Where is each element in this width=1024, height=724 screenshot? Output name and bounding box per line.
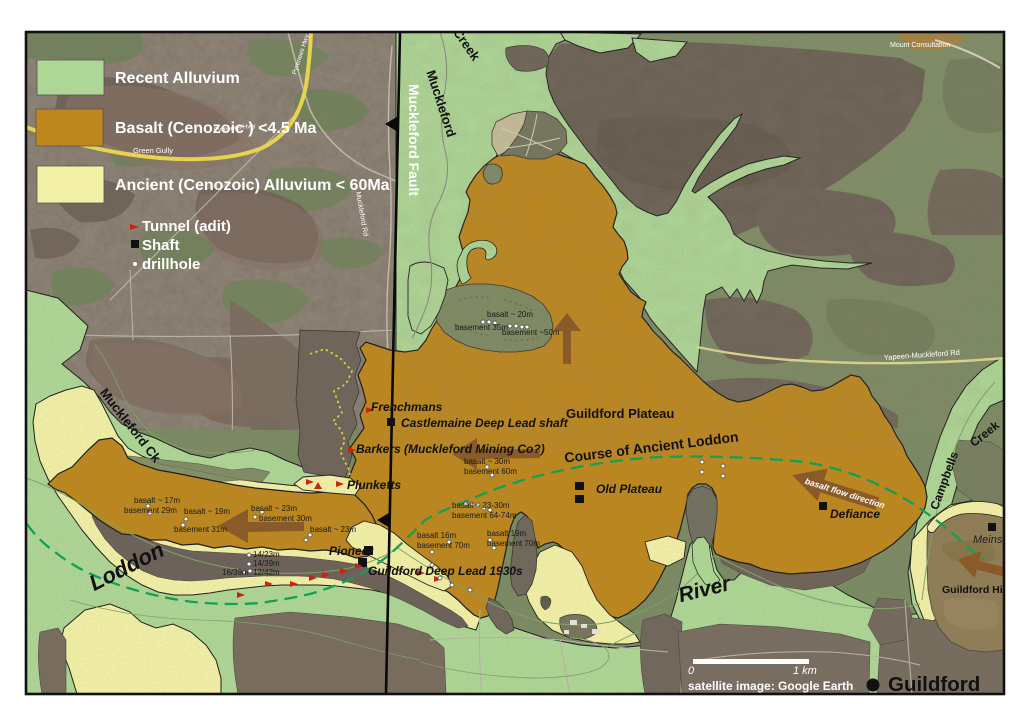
svg-text:basalt ~ 20m: basalt ~ 20m bbox=[487, 310, 533, 319]
svg-text:Meins: Meins bbox=[973, 534, 1003, 546]
svg-text:Guildford: Guildford bbox=[888, 673, 980, 696]
svg-text:Old Plateau: Old Plateau bbox=[596, 482, 663, 496]
svg-text:Green Gully: Green Gully bbox=[133, 146, 173, 155]
svg-text:basalt ~ 19m: basalt ~ 19m bbox=[184, 507, 230, 516]
svg-text:basement 29m: basement 29m bbox=[124, 506, 177, 515]
svg-text:Guildford Deep Lead 1930s: Guildford Deep Lead 1930s bbox=[368, 564, 523, 578]
svg-text:basement 60m: basement 60m bbox=[464, 467, 517, 476]
svg-text:Frenchmans: Frenchmans bbox=[371, 400, 443, 414]
svg-text:12/42m: 12/42m bbox=[253, 568, 280, 577]
svg-text:Muckleford Fault: Muckleford Fault bbox=[406, 84, 422, 196]
svg-text:Basalt (Cenozoic ) <4.5 Ma: Basalt (Cenozoic ) <4.5 Ma bbox=[115, 120, 316, 137]
svg-text:basement ~50m: basement ~50m bbox=[502, 328, 560, 337]
svg-text:basalt ~ 23m: basalt ~ 23m bbox=[251, 504, 297, 513]
svg-text:basalt 16m: basalt 16m bbox=[417, 531, 456, 540]
svg-text:Pioneer: Pioneer bbox=[329, 544, 374, 558]
svg-text:Castlemaine Deep Lead shaft: Castlemaine Deep Lead shaft bbox=[401, 416, 569, 430]
svg-text:basement 30m: basement 30m bbox=[259, 514, 312, 523]
svg-text:Shaft: Shaft bbox=[142, 237, 180, 254]
svg-text:drillhole: drillhole bbox=[142, 256, 200, 273]
svg-text:basalt ~ 23m: basalt ~ 23m bbox=[310, 525, 356, 534]
svg-text:Barkers (Muckleford Mining Co?: Barkers (Muckleford Mining Co?) bbox=[356, 442, 545, 456]
svg-text:basement 31m: basement 31m bbox=[174, 525, 227, 534]
svg-text:Recent Alluvium: Recent Alluvium bbox=[115, 70, 240, 87]
svg-text:satellite image: Google Earth: satellite image: Google Earth bbox=[688, 679, 853, 693]
svg-text:Mount Consultation: Mount Consultation bbox=[890, 42, 950, 49]
svg-text:basement 70m: basement 70m bbox=[417, 541, 470, 550]
svg-text:Tunnel (adit): Tunnel (adit) bbox=[142, 218, 231, 235]
svg-text:basalt ~ 17m: basalt ~ 17m bbox=[134, 496, 180, 505]
svg-text:Ancient (Cenozoic) Alluvium <: Ancient (Cenozoic) Alluvium < 60Ma bbox=[115, 177, 390, 194]
svg-text:Plunketts: Plunketts bbox=[347, 478, 401, 492]
svg-text:basement 70m: basement 70m bbox=[487, 539, 540, 548]
svg-text:16/39m: 16/39m bbox=[222, 568, 249, 577]
svg-text:basalt ~ 23-30m: basalt ~ 23-30m bbox=[452, 501, 510, 510]
svg-text:Guildford Hill: Guildford Hill bbox=[942, 584, 1009, 596]
svg-text:basalt 19m: basalt 19m bbox=[487, 529, 526, 538]
svg-text:basement 64-74m: basement 64-74m bbox=[452, 511, 517, 520]
svg-text:Defiance: Defiance bbox=[830, 507, 880, 521]
svg-text:basement 35m: basement 35m bbox=[455, 323, 508, 332]
svg-text:1 km: 1 km bbox=[793, 665, 817, 677]
svg-text:0: 0 bbox=[688, 665, 695, 677]
svg-text:14/23m: 14/23m bbox=[253, 550, 280, 559]
svg-text:Guildford Plateau: Guildford Plateau bbox=[566, 406, 674, 421]
svg-text:basalt ~ 30m: basalt ~ 30m bbox=[464, 457, 510, 466]
svg-text:14/39m: 14/39m bbox=[253, 559, 280, 568]
